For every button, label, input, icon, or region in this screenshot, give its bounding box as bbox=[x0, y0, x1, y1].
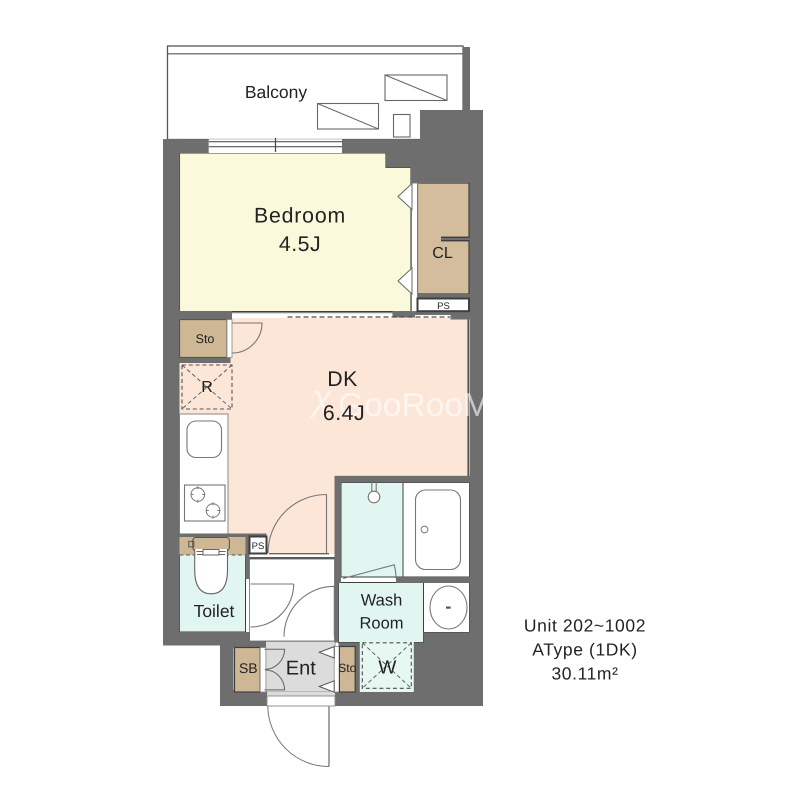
svg-text:W: W bbox=[378, 658, 396, 679]
svg-text:30.11m²: 30.11m² bbox=[551, 664, 618, 684]
svg-text:6.4J: 6.4J bbox=[323, 401, 365, 425]
svg-text:Room: Room bbox=[359, 615, 403, 633]
svg-text:Balcony: Balcony bbox=[245, 82, 308, 102]
svg-text:R: R bbox=[201, 379, 213, 396]
svg-text:Wash: Wash bbox=[361, 592, 403, 610]
svg-text:Unit 202~1002: Unit 202~1002 bbox=[524, 616, 646, 636]
svg-text:AType (1DK): AType (1DK) bbox=[532, 640, 637, 660]
svg-text:PS: PS bbox=[252, 541, 265, 552]
svg-text:DK: DK bbox=[327, 367, 358, 391]
svg-text:4.5J: 4.5J bbox=[279, 232, 321, 256]
svg-text:Sto: Sto bbox=[338, 661, 356, 675]
svg-text:SB: SB bbox=[239, 660, 258, 676]
svg-text:Toilet: Toilet bbox=[194, 601, 235, 621]
svg-text:CL: CL bbox=[432, 245, 453, 262]
svg-text:Ent: Ent bbox=[286, 658, 316, 680]
svg-text:Sto: Sto bbox=[196, 332, 215, 346]
svg-text:Bedroom: Bedroom bbox=[254, 204, 346, 228]
svg-text:PS: PS bbox=[437, 301, 450, 312]
